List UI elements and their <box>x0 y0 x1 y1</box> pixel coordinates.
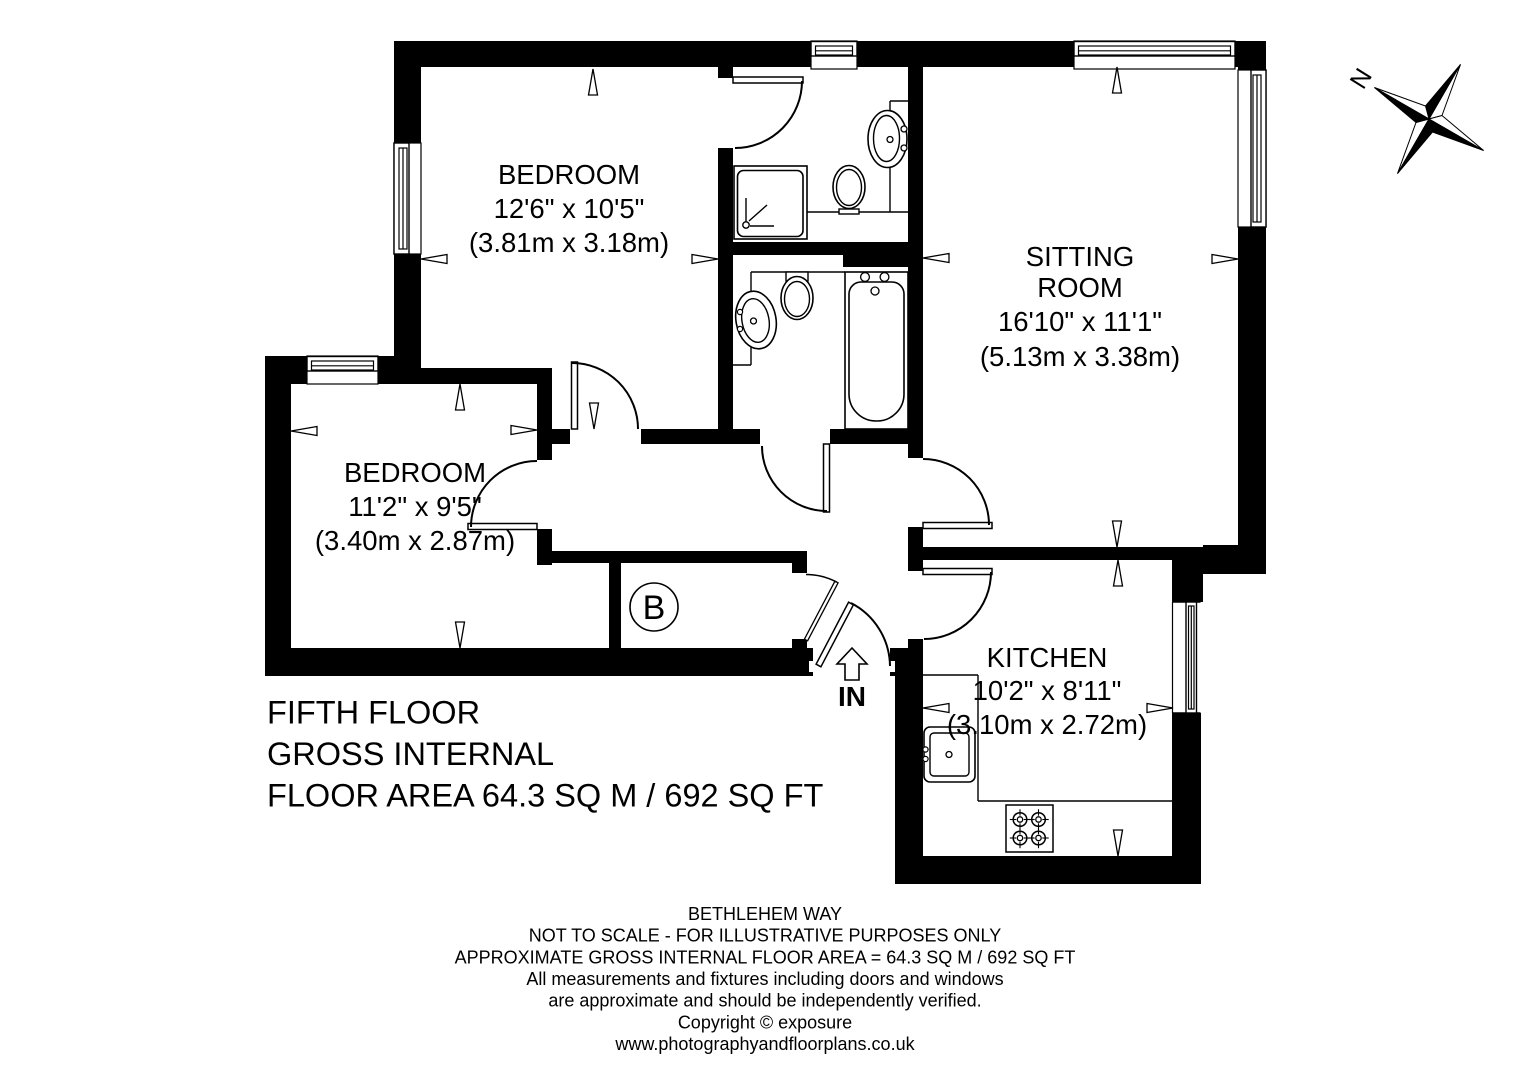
svg-text:(5.13m x 3.38m): (5.13m x 3.38m) <box>980 341 1180 372</box>
svg-text:(3.40m x 2.87m): (3.40m x 2.87m) <box>315 525 515 556</box>
svg-text:KITCHEN: KITCHEN <box>987 642 1108 673</box>
svg-text:APPROXIMATE GROSS INTERNAL FLO: APPROXIMATE GROSS INTERNAL FLOOR AREA = … <box>455 947 1076 967</box>
svg-text:B: B <box>643 589 666 627</box>
svg-text:BEDROOM: BEDROOM <box>498 159 640 190</box>
svg-text:FIFTH FLOOR: FIFTH FLOOR <box>267 695 480 731</box>
svg-text:NOT TO SCALE - FOR ILLUSTRATIV: NOT TO SCALE - FOR ILLUSTRATIVE PURPOSES… <box>529 926 1001 946</box>
svg-text:BEDROOM: BEDROOM <box>344 457 486 488</box>
svg-text:10'2" x 8'11": 10'2" x 8'11" <box>973 675 1122 706</box>
svg-text:SITTING: SITTING <box>1026 241 1134 272</box>
svg-text:12'6" x 10'5": 12'6" x 10'5" <box>494 193 645 224</box>
svg-text:All measurements and fixtures: All measurements and fixtures including … <box>526 969 1003 989</box>
svg-text:www.photographyandfloorplans.c: www.photographyandfloorplans.co.uk <box>614 1034 915 1054</box>
svg-text:16'10" x 11'1": 16'10" x 11'1" <box>998 306 1162 337</box>
svg-text:IN: IN <box>838 681 866 712</box>
svg-text:11'2" x 9'5": 11'2" x 9'5" <box>348 491 482 522</box>
svg-text:are approximate and should be: are approximate and should be independen… <box>548 991 981 1011</box>
svg-text:FLOOR AREA 64.3 SQ M / 692 SQ: FLOOR AREA 64.3 SQ M / 692 SQ FT <box>267 778 823 814</box>
svg-text:GROSS INTERNAL: GROSS INTERNAL <box>267 736 554 772</box>
svg-text:(3.81m x 3.18m): (3.81m x 3.18m) <box>469 227 669 258</box>
svg-text:BETHLEHEM WAY: BETHLEHEM WAY <box>688 904 842 924</box>
svg-text:ROOM: ROOM <box>1037 272 1123 303</box>
svg-text:Copyright © exposure: Copyright © exposure <box>678 1012 852 1032</box>
svg-text:(3.10m x 2.72m): (3.10m x 2.72m) <box>947 709 1147 740</box>
